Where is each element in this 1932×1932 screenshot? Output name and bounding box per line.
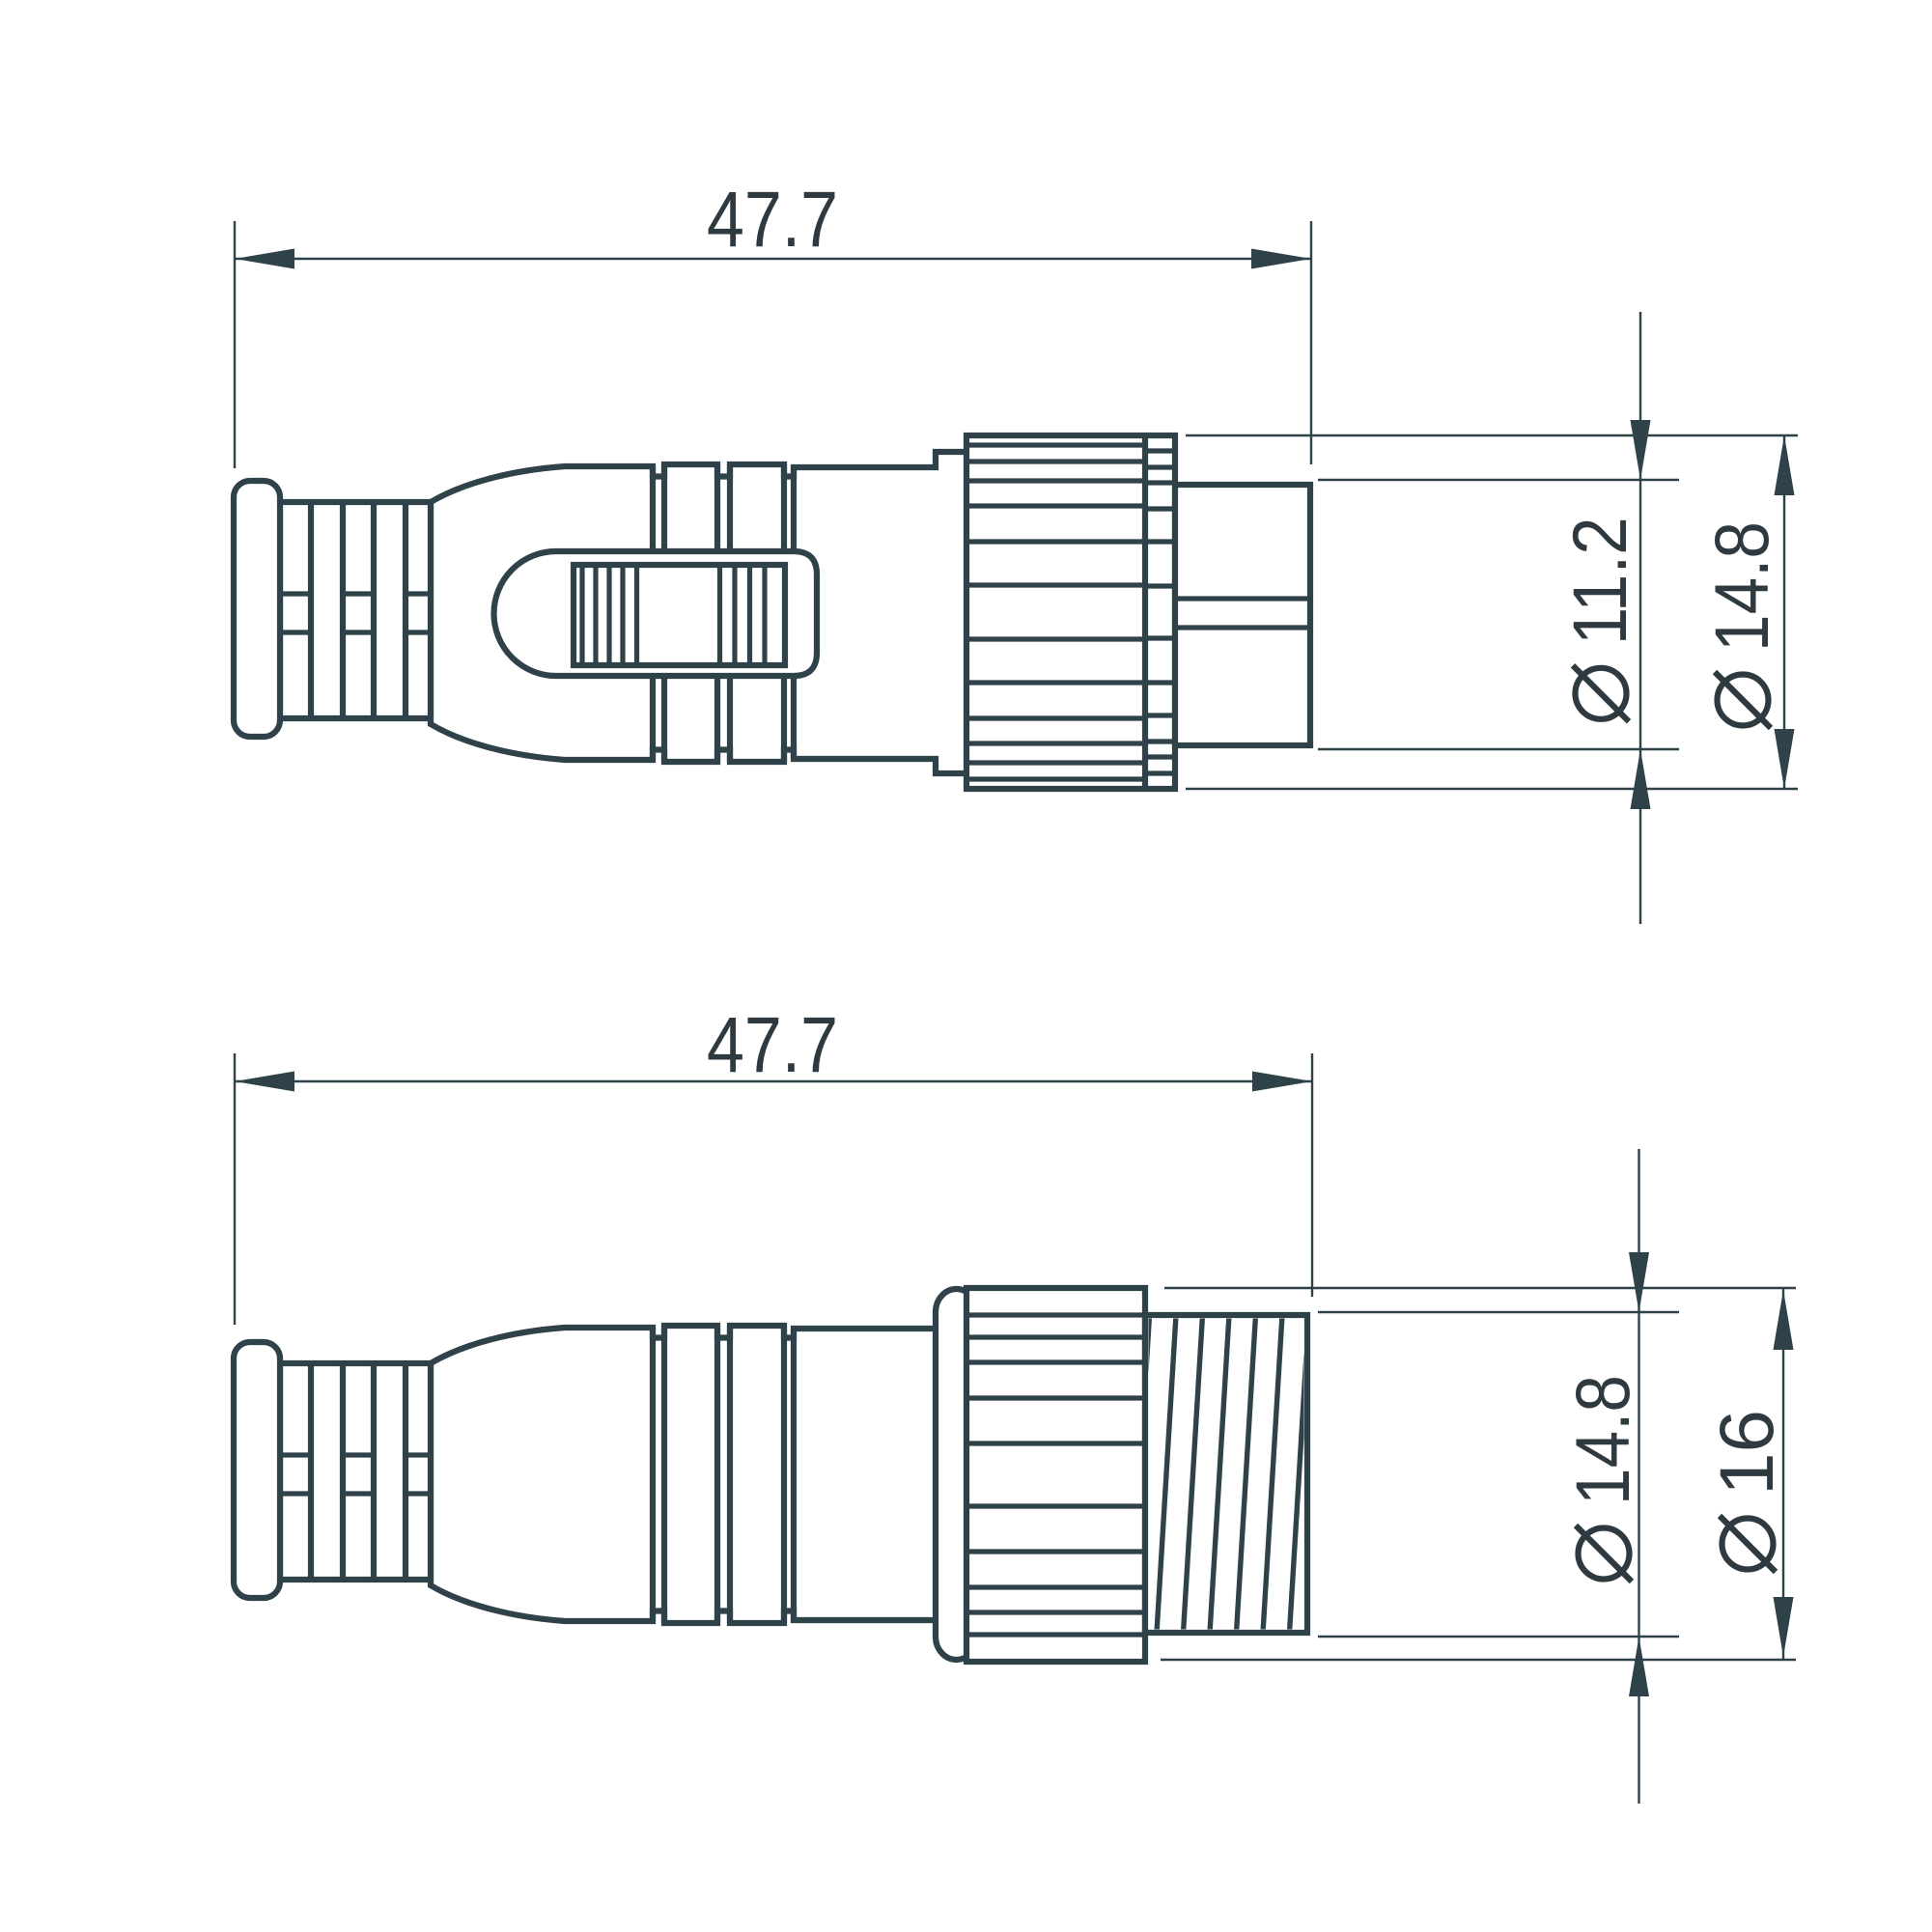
svg-text:47.7: 47.7 [707, 176, 838, 264]
svg-text:14.8: 14.8 [1559, 1375, 1645, 1505]
svg-text:16: 16 [1703, 1410, 1789, 1496]
svg-text:47.7: 47.7 [707, 1001, 838, 1089]
svg-text:14.8: 14.8 [1698, 521, 1784, 652]
svg-text:11.2: 11.2 [1556, 517, 1642, 645]
